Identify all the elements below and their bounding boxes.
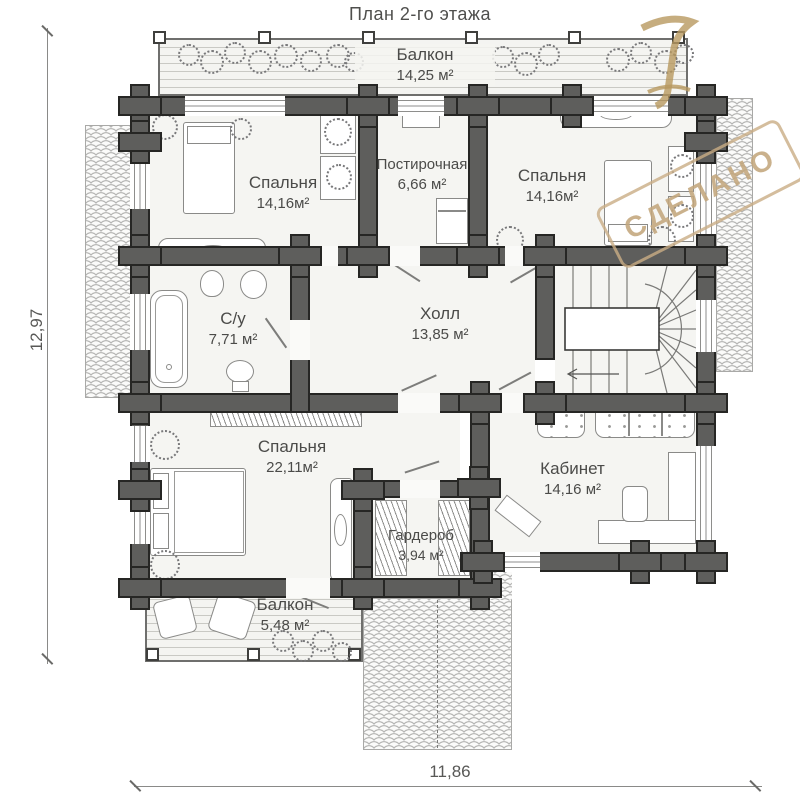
log-cross-joint bbox=[457, 466, 501, 510]
sink bbox=[240, 270, 267, 299]
room-area: 5,48 м² bbox=[230, 616, 340, 636]
room-name: Холл bbox=[370, 303, 510, 325]
log-cross-joint bbox=[523, 381, 567, 425]
railing-post bbox=[153, 31, 166, 44]
window-opening bbox=[185, 96, 285, 116]
dimension-line-left bbox=[47, 28, 48, 664]
window-opening bbox=[696, 446, 716, 540]
plant-icon bbox=[292, 640, 314, 662]
room-label-balcony-top: Балкон 14,25 м² bbox=[355, 44, 495, 86]
room-label-bathroom: С/у 7,71 м² bbox=[168, 308, 298, 350]
log-cross-joint bbox=[118, 566, 162, 610]
room-area: 22,11м² bbox=[222, 458, 362, 478]
room-label-bedroom-tl: Спальня 14,16м² bbox=[213, 172, 353, 214]
plant-icon bbox=[200, 50, 224, 74]
plant-icon bbox=[514, 52, 538, 76]
staircase bbox=[555, 266, 696, 393]
room-name: Постирочная bbox=[360, 155, 484, 175]
room-name: Спальня bbox=[213, 172, 353, 194]
room-label-balcony-bottom: Балкон 5,48 м² bbox=[230, 594, 340, 636]
bed-pillow bbox=[153, 513, 169, 549]
window-opening bbox=[696, 300, 716, 352]
room-label-hall: Холл 13,85 м² bbox=[370, 303, 510, 345]
plant-icon bbox=[230, 118, 252, 140]
toilet-bowl bbox=[226, 360, 254, 383]
room-name: Кабинет bbox=[500, 458, 645, 480]
log-cross-joint bbox=[523, 234, 567, 278]
door-opening bbox=[398, 393, 440, 413]
plant-icon bbox=[224, 42, 246, 64]
room-area: 14,16м² bbox=[213, 194, 353, 214]
log-cross-joint bbox=[118, 468, 162, 512]
dresser-handle bbox=[334, 514, 347, 546]
railing-post bbox=[146, 648, 159, 661]
log-cross-joint bbox=[341, 566, 385, 610]
room-name: Гардероб bbox=[371, 526, 471, 546]
plant-icon bbox=[332, 642, 352, 662]
log-cross-joint bbox=[118, 381, 162, 425]
window-opening bbox=[130, 294, 150, 350]
dimension-left-value: 12,97 bbox=[27, 295, 47, 365]
door-opening bbox=[400, 480, 440, 498]
room-label-office: Кабинет 14,16 м² bbox=[500, 458, 645, 500]
room-area: 3,94 м² bbox=[371, 546, 471, 564]
room-name: Спальня bbox=[222, 436, 362, 458]
roof-ridge-line bbox=[437, 600, 438, 748]
logo-ornament bbox=[630, 12, 700, 112]
bathtub-drain bbox=[166, 364, 172, 370]
plant-icon bbox=[248, 50, 272, 74]
plant-icon bbox=[606, 48, 630, 72]
dimension-bottom-value: 11,86 bbox=[390, 762, 510, 782]
log-cross-joint bbox=[346, 84, 390, 128]
plant-icon bbox=[150, 430, 180, 460]
sink bbox=[200, 270, 224, 297]
plant-icon bbox=[492, 46, 514, 68]
log-cross-joint bbox=[278, 234, 322, 278]
dimension-line-bottom bbox=[134, 786, 762, 787]
floor-plan-canvas: План 2-го этажа Балкон 14,25 м² Балкон 5… bbox=[0, 0, 800, 800]
railing-post bbox=[568, 31, 581, 44]
toilet-tank bbox=[232, 381, 249, 392]
log-cross-joint bbox=[684, 540, 728, 584]
room-label-bedroom-bottom: Спальня 22,11м² bbox=[222, 436, 362, 478]
room-area: 14,16м² bbox=[482, 187, 622, 207]
room-name: Спальня bbox=[482, 165, 622, 187]
railing-post bbox=[362, 31, 375, 44]
log-cross-joint bbox=[550, 84, 594, 128]
bed-mattress bbox=[174, 471, 244, 553]
plant-icon bbox=[300, 50, 322, 72]
plant-icon bbox=[274, 44, 298, 68]
page-title: План 2-го этажа bbox=[280, 4, 560, 25]
log-cross-joint bbox=[346, 234, 390, 278]
log-cross-joint bbox=[118, 120, 162, 164]
log-cross-joint bbox=[456, 84, 500, 128]
room-area: 14,16 м² bbox=[500, 480, 645, 500]
door-opening bbox=[286, 578, 330, 598]
log-cross-joint bbox=[684, 234, 728, 278]
room-name: Балкон bbox=[355, 44, 495, 66]
window-opening bbox=[130, 426, 150, 462]
washing-machine-line bbox=[438, 210, 466, 212]
bed-pillow bbox=[187, 126, 231, 144]
railing-post bbox=[465, 31, 478, 44]
railing-post bbox=[247, 648, 260, 661]
log-cross-joint bbox=[684, 381, 728, 425]
railing-post bbox=[258, 31, 271, 44]
room-label-laundry: Постирочная 6,66 м² bbox=[360, 155, 484, 194]
window-opening bbox=[398, 96, 444, 116]
room-label-wardrobe: Гардероб 3,94 м² bbox=[371, 526, 471, 564]
log-cross-joint bbox=[456, 234, 500, 278]
room-area: 13,85 м² bbox=[370, 325, 510, 345]
room-label-bedroom-tr: Спальня 14,16м² bbox=[482, 165, 622, 207]
room-name: С/у bbox=[168, 308, 298, 330]
log-cross-joint bbox=[458, 381, 502, 425]
plant-icon bbox=[538, 44, 560, 66]
plant-icon bbox=[178, 44, 200, 66]
log-cross-joint bbox=[618, 540, 662, 584]
room-area: 6,66 м² bbox=[360, 175, 484, 195]
room-area: 14,25 м² bbox=[355, 66, 495, 86]
window-opening bbox=[130, 163, 150, 209]
log-cross-joint bbox=[118, 234, 162, 278]
room-area: 7,71 м² bbox=[168, 330, 298, 350]
